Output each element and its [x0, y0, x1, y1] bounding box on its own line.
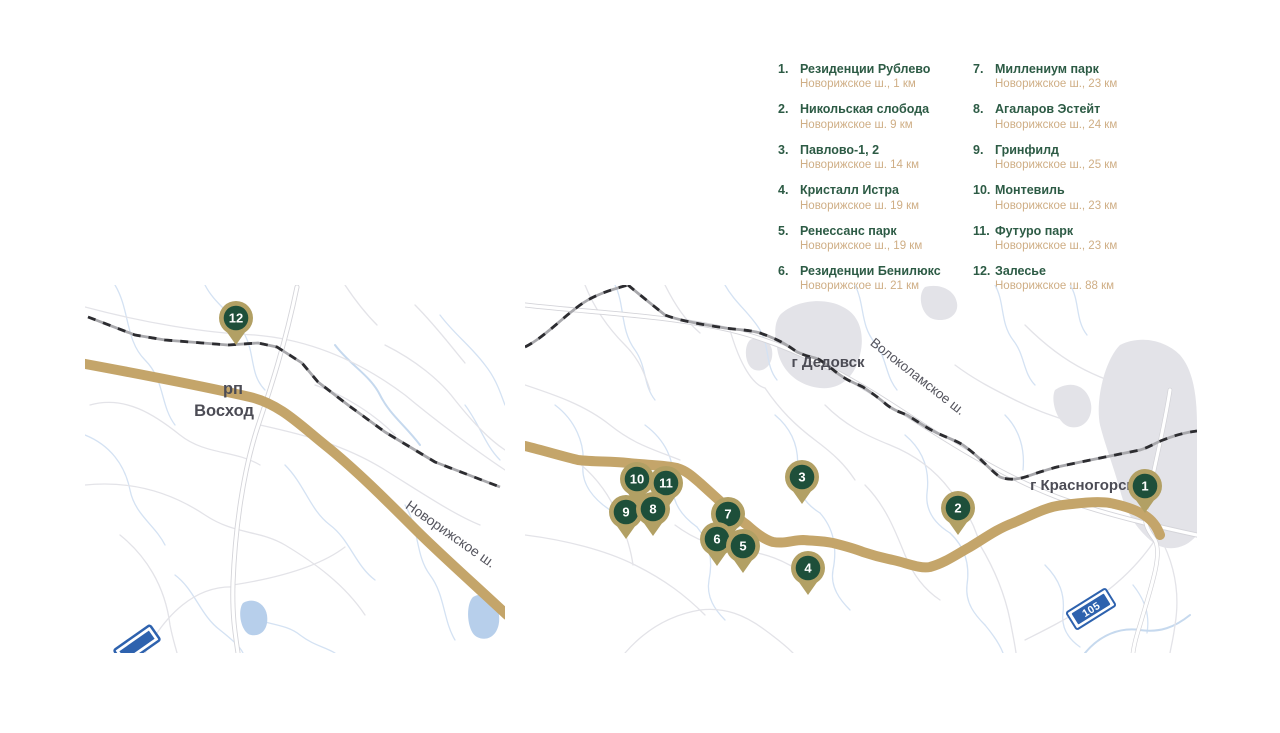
map-marker-2[interactable]: 2 [941, 491, 975, 535]
legend-item-number: 3. [778, 143, 800, 171]
page-root: 1. Резиденции Рублево Новорижское ш., 1 … [0, 0, 1280, 733]
legend-item-number: 9. [973, 143, 995, 171]
legend-item-distance: Новорижское ш., 1 км [800, 78, 930, 90]
legend-item-name: Кристалл Истра [800, 183, 919, 197]
map-marker-3[interactable]: 3 [785, 460, 819, 504]
svg-text:8: 8 [649, 502, 656, 517]
legend-item-distance: Новорижское ш., 23 км [995, 200, 1117, 212]
svg-text:рп: рп [223, 380, 243, 398]
map-marker-12[interactable]: 12 [219, 301, 253, 345]
legend-item-distance: Новорижское ш., 24 км [995, 119, 1117, 131]
svg-text:3: 3 [798, 470, 805, 485]
city-label-krasnogorsk: г Красногорск [1030, 477, 1134, 494]
legend-item: 8. Агаларов Эстейт Новорижское ш., 24 км [973, 102, 1168, 130]
svg-text:12: 12 [229, 311, 243, 326]
legend-item-distance: Новорижское ш. 14 км [800, 159, 919, 171]
road-badge-105: 105 [1066, 588, 1116, 629]
legend-item: 4. Кристалл Истра Новорижское ш. 19 км [778, 183, 973, 211]
legend-item: 3. Павлово-1, 2 Новорижское ш. 14 км [778, 143, 973, 171]
svg-text:5: 5 [739, 539, 746, 554]
legend-item-distance: Новорижское ш., 23 км [995, 78, 1117, 90]
legend-item-distance: Новорижское ш. 19 км [800, 200, 919, 212]
map-marker-8[interactable]: 8 [636, 492, 670, 536]
legend-item-number: 5. [778, 224, 800, 252]
legend-item: 5. Ренессанс парк Новорижское ш., 19 км [778, 224, 973, 252]
railway-left [88, 317, 500, 487]
legend-item-name: Гринфилд [995, 143, 1117, 157]
legend-item-name: Резиденции Рублево [800, 62, 930, 76]
legend-item-name: Монтевиль [995, 183, 1117, 197]
legend-item-number: 10. [973, 183, 995, 211]
legend-item-name: Залесье [995, 264, 1114, 278]
legend-item-name: Агаларов Эстейт [995, 102, 1117, 116]
legend-item: 1. Резиденции Рублево Новорижское ш., 1 … [778, 62, 973, 90]
map-marker-4[interactable]: 4 [791, 551, 825, 595]
legend-item: 10. Монтевиль Новорижское ш., 23 км [973, 183, 1168, 211]
legend-item: 2. Никольская слобода Новорижское ш. 9 к… [778, 102, 973, 130]
svg-text:6: 6 [713, 532, 720, 547]
markers-left-layer: 12 [219, 301, 253, 345]
legend-column-1: 1. Резиденции Рублево Новорижское ш., 1 … [778, 62, 973, 304]
legend-item-number: 4. [778, 183, 800, 211]
svg-text:9: 9 [622, 505, 629, 520]
legend-item-name: Миллениум парк [995, 62, 1117, 76]
legend-item-name: Резиденции Бенилюкс [800, 264, 941, 278]
legend-item-number: 8. [973, 102, 995, 130]
water-layer-left [85, 285, 505, 653]
svg-text:2: 2 [954, 501, 961, 516]
legend-item-distance: Новорижское ш. 9 км [800, 119, 929, 131]
legend-item-number: 1. [778, 62, 800, 90]
minor-roads-left [85, 285, 505, 653]
legend-item-distance: Новорижское ш., 19 км [800, 240, 922, 252]
legend-item: 11. Футуро парк Новорижское ш., 23 км [973, 224, 1168, 252]
legend-item-distance: Новорижское ш., 25 км [995, 159, 1117, 171]
legend-item-name: Павлово-1, 2 [800, 143, 919, 157]
map-marker-5[interactable]: 5 [726, 529, 760, 573]
legend-item: 9. Гринфилд Новорижское ш., 25 км [973, 143, 1168, 171]
legend-item-distance: Новорижское ш., 23 км [995, 240, 1117, 252]
legend-item: 7. Миллениум парк Новорижское ш., 23 км [973, 62, 1168, 90]
legend-item-number: 2. [778, 102, 800, 130]
legend-column-2: 7. Миллениум парк Новорижское ш., 23 км … [973, 62, 1168, 304]
svg-text:1: 1 [1141, 479, 1148, 494]
svg-text:Восход: Восход [194, 402, 254, 420]
legend-item-name: Футуро парк [995, 224, 1117, 238]
road-label-volokolamskoe: Волоколамское ш. [868, 335, 969, 418]
svg-text:4: 4 [804, 561, 812, 576]
svg-text:10: 10 [630, 472, 644, 487]
svg-text:11: 11 [659, 476, 673, 491]
map-right: 105 г Дедовск Волоколамское ш. г Красног… [525, 285, 1197, 653]
city-label-dedovsk: г Дедовск [791, 354, 865, 371]
legend-item-name: Никольская слобода [800, 102, 929, 116]
legend-item-name: Ренессанс парк [800, 224, 922, 238]
legend-item-number: 11. [973, 224, 995, 252]
map-left: рп Восход Новорижское ш. 12 [85, 285, 505, 653]
legend-item-number: 7. [973, 62, 995, 90]
legend: 1. Резиденции Рублево Новорижское ш., 1 … [778, 62, 1168, 304]
road-badge-left [114, 625, 160, 653]
svg-text:7: 7 [724, 507, 731, 522]
lake [240, 601, 267, 636]
